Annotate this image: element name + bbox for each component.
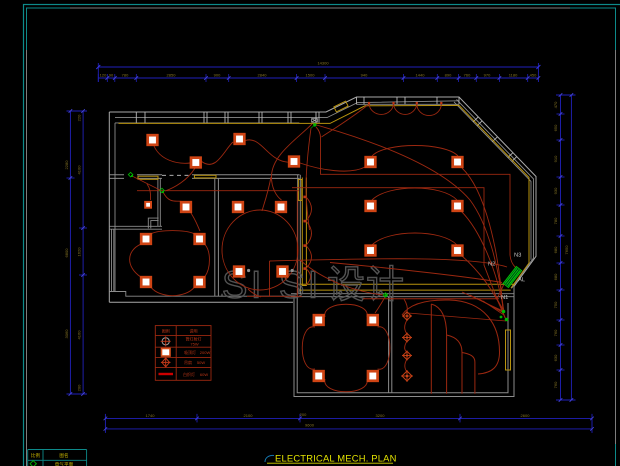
svg-text:760: 760 [553,329,558,336]
svg-text:AL: AL [518,277,526,283]
svg-text:设计: 设计 [327,265,405,307]
svg-text:760: 760 [464,72,471,77]
svg-text:3060: 3060 [64,329,69,339]
svg-text:450: 450 [530,72,537,77]
svg-text:760: 760 [553,381,558,388]
svg-text:2280: 2280 [64,160,69,170]
svg-text:电气平面: 电气平面 [55,461,74,466]
svg-text:4100: 4100 [77,165,82,175]
svg-text:N3: N3 [514,253,521,259]
svg-text:N2: N2 [488,262,495,268]
svg-text:说明: 说明 [190,327,198,333]
svg-text:7650: 7650 [564,245,569,255]
svg-text:6800: 6800 [64,248,69,258]
svg-text:1740: 1740 [146,413,156,418]
svg-text:14300: 14300 [317,61,329,66]
svg-text:吊扇: 吊扇 [184,359,192,365]
svg-text:890: 890 [445,72,452,77]
svg-text:750: 750 [553,301,558,308]
svg-text:60W: 60W [200,372,208,377]
svg-text:200W: 200W [200,350,211,355]
svg-text:970: 970 [484,72,491,77]
svg-text:1440: 1440 [416,72,426,77]
svg-text:220: 220 [77,114,82,121]
svg-text:630: 630 [553,354,558,361]
svg-text:ELECTRICAL MECH. PLAN: ELECTRICAL MECH. PLAN [275,453,397,464]
svg-text:200: 200 [77,384,82,391]
svg-text:N1: N1 [501,295,508,301]
svg-text:吸顶灯: 吸顶灯 [184,349,196,355]
svg-text:9600: 9600 [305,422,315,427]
svg-text:1620: 1620 [77,247,82,257]
svg-text:780: 780 [553,217,558,224]
svg-text:910: 910 [553,155,558,162]
svg-text:75W: 75W [190,342,198,347]
svg-text:2100: 2100 [244,413,254,418]
svg-text:680: 680 [553,273,558,280]
svg-text:200: 200 [300,412,307,417]
svg-text:1180: 1180 [509,72,518,77]
svg-text:650: 650 [553,124,558,131]
svg-text:50W: 50W [197,360,205,365]
svg-text:470: 470 [553,101,558,108]
svg-text:1500: 1500 [306,72,316,77]
svg-text:2850: 2850 [167,72,177,77]
svg-text:680: 680 [553,246,558,253]
svg-text:2600: 2600 [521,413,531,418]
svg-text:900: 900 [214,72,221,77]
svg-text:图名: 图名 [59,452,68,459]
svg-text:4160: 4160 [77,330,82,340]
svg-text:930: 930 [553,187,558,194]
svg-text:3200: 3200 [376,413,386,418]
svg-text:白炽灯: 白炽灯 [183,371,195,377]
svg-text:940: 940 [361,72,368,77]
svg-text:图例: 图例 [162,327,170,333]
svg-text:780: 780 [122,72,129,77]
svg-text:120: 120 [100,72,107,77]
svg-text:90: 90 [109,72,114,77]
svg-text:2840: 2840 [258,72,268,77]
svg-text:比例: 比例 [31,452,41,459]
